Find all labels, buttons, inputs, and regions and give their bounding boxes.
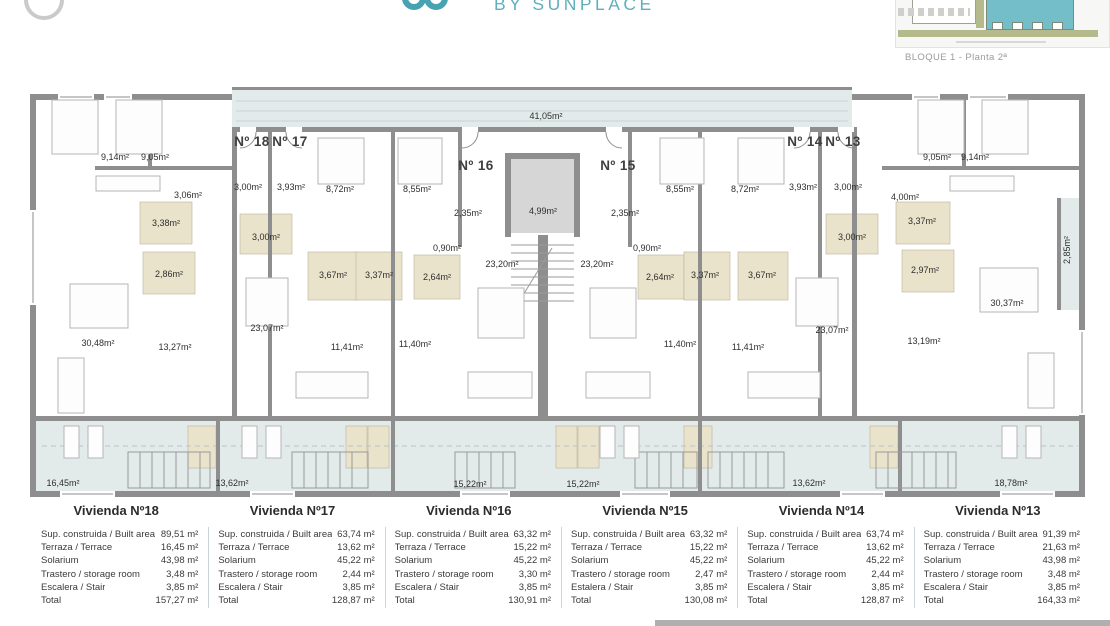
row-label: Escalera / Stair bbox=[41, 581, 105, 594]
vivienda-rows: Sup. construida / Built area63,32 m² Ter… bbox=[385, 527, 553, 608]
vivienda-title: Vivienda Nº17 bbox=[208, 503, 376, 518]
row-value: 15,22 m² bbox=[686, 541, 728, 554]
row-value: 2,44 m² bbox=[867, 568, 903, 581]
area-label: 13,62m² bbox=[792, 478, 825, 488]
table-row: Total130,08 m² bbox=[571, 594, 727, 607]
row-label: Trastero / storage room bbox=[395, 568, 494, 581]
area-label: 41,05m² bbox=[529, 111, 562, 121]
row-value: 63,32 m² bbox=[509, 528, 551, 541]
row-label: Solarium bbox=[924, 554, 962, 567]
area-label: 16,45m² bbox=[46, 478, 79, 488]
table-row: Trastero / storage room2,44 m² bbox=[747, 568, 903, 581]
row-label: Terraza / Terrace bbox=[924, 541, 995, 554]
row-label: Trastero / storage room bbox=[218, 568, 317, 581]
table-row: Estalera / Stair3,85 m² bbox=[571, 581, 727, 594]
area-label: 23,07m² bbox=[250, 323, 283, 333]
vivienda-rows: Sup. construida / Built area89,51 m² Ter… bbox=[32, 527, 200, 608]
table-row: Sup. construida / Built area63,32 m² bbox=[395, 528, 551, 541]
row-label: Escalera / Stair bbox=[218, 581, 282, 594]
vivienda-rows: Sup. construida / Built area63,32 m² Ter… bbox=[561, 527, 729, 608]
vivienda-rows: Sup. construida / Built area91,39 m² Ter… bbox=[914, 527, 1082, 608]
vivienda-18-summary: Vivienda Nº18 Sup. construida / Built ar… bbox=[28, 503, 204, 608]
floor-plan: Nº 18 Nº 17 Nº 16 Nº 15 Nº 14 Nº 13 41,0… bbox=[0, 0, 1110, 505]
row-label: Terraza / Terrace bbox=[41, 541, 112, 554]
area-label: 8,55m² bbox=[666, 184, 694, 194]
row-label: Solarium bbox=[571, 554, 609, 567]
row-label: Terraza / Terrace bbox=[218, 541, 289, 554]
table-row: Sup. construida / Built area89,51 m² bbox=[41, 528, 198, 541]
area-label: 11,40m² bbox=[664, 339, 696, 349]
table-row: Terraza / Terrace15,22 m² bbox=[395, 541, 551, 554]
table-row: Escalera / Stair3,85 m² bbox=[218, 581, 374, 594]
area-label: 3,06m² bbox=[174, 190, 202, 200]
vivienda-16-summary: Vivienda Nº16 Sup. construida / Built ar… bbox=[381, 503, 557, 608]
table-row: Terraza / Terrace13,62 m² bbox=[747, 541, 903, 554]
area-label: 11,41m² bbox=[331, 342, 363, 352]
row-label: Terraza / Terrace bbox=[747, 541, 818, 554]
area-label: 2,64m² bbox=[646, 272, 674, 282]
vivienda-rows: Sup. construida / Built area63,74 m² Ter… bbox=[737, 527, 905, 608]
area-label: 15,22m² bbox=[453, 479, 486, 489]
table-row: Solarium43,98 m² bbox=[924, 554, 1080, 567]
apartment-number-13: Nº 13 bbox=[825, 134, 861, 149]
row-value: 13,62 m² bbox=[862, 541, 904, 554]
row-value: 164,33 m² bbox=[1033, 594, 1080, 607]
row-value: 13,62 m² bbox=[333, 541, 375, 554]
area-label: 23,20m² bbox=[580, 259, 613, 269]
row-value: 3,85 m² bbox=[162, 581, 198, 594]
vivienda-title: Vivienda Nº15 bbox=[561, 503, 729, 518]
vivienda-title: Vivienda Nº16 bbox=[385, 503, 553, 518]
vivienda-14-summary: Vivienda Nº14 Sup. construida / Built ar… bbox=[733, 503, 909, 608]
vivienda-17-summary: Vivienda Nº17 Sup. construida / Built ar… bbox=[204, 503, 380, 608]
apartment-number-18: Nº 18 bbox=[234, 134, 270, 149]
area-label: 13,19m² bbox=[907, 336, 940, 346]
area-label: 2,85m² bbox=[1062, 236, 1072, 264]
row-label: Sup. construida / Built area bbox=[218, 528, 332, 541]
table-row: Solarium45,22 m² bbox=[571, 554, 727, 567]
row-label: Trastero / storage room bbox=[924, 568, 1023, 581]
area-label: 23,07m² bbox=[815, 325, 848, 335]
row-value: 16,45 m² bbox=[157, 541, 199, 554]
table-row: Total130,91 m² bbox=[395, 594, 551, 607]
area-label: 3,00m² bbox=[252, 232, 280, 242]
row-value: 45,22 m² bbox=[509, 554, 551, 567]
area-label: 2,35m² bbox=[454, 208, 482, 218]
area-label: 3,00m² bbox=[234, 182, 262, 192]
area-label: 3,37m² bbox=[691, 270, 719, 280]
row-value: 15,22 m² bbox=[509, 541, 551, 554]
row-value: 91,39 m² bbox=[1038, 528, 1080, 541]
area-label: 2,64m² bbox=[423, 272, 451, 282]
row-label: Sup. construida / Built area bbox=[41, 528, 155, 541]
area-label: 3,93m² bbox=[789, 182, 817, 192]
apartment-number-14: Nº 14 bbox=[787, 134, 823, 149]
row-value: 2,44 m² bbox=[338, 568, 374, 581]
table-row: Total164,33 m² bbox=[924, 594, 1080, 607]
table-row: Total157,27 m² bbox=[41, 594, 198, 607]
table-row: Terraza / Terrace16,45 m² bbox=[41, 541, 198, 554]
apartment-number-16: Nº 16 bbox=[458, 158, 494, 173]
row-value: 3,85 m² bbox=[1044, 581, 1080, 594]
area-label: 30,37m² bbox=[990, 298, 1023, 308]
row-value: 63,32 m² bbox=[686, 528, 728, 541]
area-label: 11,40m² bbox=[399, 339, 431, 349]
area-label: 30,48m² bbox=[81, 338, 114, 348]
apartment-number-15: Nº 15 bbox=[600, 158, 636, 173]
table-row: Total128,87 m² bbox=[747, 594, 903, 607]
table-row: Terraza / Terrace15,22 m² bbox=[571, 541, 727, 554]
area-label: 4,99m² bbox=[529, 206, 557, 216]
vivienda-rows: Sup. construida / Built area63,74 m² Ter… bbox=[208, 527, 376, 608]
row-label: Total bbox=[747, 594, 767, 607]
row-value: 157,27 m² bbox=[152, 594, 199, 607]
row-label: Trastero / storage room bbox=[41, 568, 140, 581]
area-label: 3,37m² bbox=[908, 216, 936, 226]
row-value: 3,85 m² bbox=[515, 581, 551, 594]
row-label: Sup. construida / Built area bbox=[747, 528, 861, 541]
area-label: 18,78m² bbox=[994, 478, 1027, 488]
table-row: Solarium45,22 m² bbox=[395, 554, 551, 567]
area-label: 23,20m² bbox=[485, 259, 518, 269]
apartment-number-17: Nº 17 bbox=[272, 134, 307, 149]
area-label: 2,35m² bbox=[611, 208, 639, 218]
row-label: Terraza / Terrace bbox=[571, 541, 642, 554]
table-row: Sup. construida / Built area63,32 m² bbox=[571, 528, 727, 541]
row-label: Total bbox=[571, 594, 591, 607]
row-value: 45,22 m² bbox=[686, 554, 728, 567]
table-row: Solarium43,98 m² bbox=[41, 554, 198, 567]
row-value: 128,87 m² bbox=[328, 594, 375, 607]
table-row: Terraza / Terrace13,62 m² bbox=[218, 541, 374, 554]
row-value: 128,87 m² bbox=[857, 594, 904, 607]
row-value: 3,30 m² bbox=[515, 568, 551, 581]
area-label: 0,90m² bbox=[633, 243, 661, 253]
row-label: Escalera / Stair bbox=[924, 581, 988, 594]
row-label: Sup. construida / Built area bbox=[924, 528, 1038, 541]
table-row: Solarium45,22 m² bbox=[747, 554, 903, 567]
area-label: 3,00m² bbox=[838, 232, 866, 242]
row-value: 63,74 m² bbox=[333, 528, 375, 541]
row-value: 43,98 m² bbox=[157, 554, 199, 567]
table-row: Solarium45,22 m² bbox=[218, 554, 374, 567]
vivienda-summary-table: Vivienda Nº18 Sup. construida / Built ar… bbox=[28, 503, 1086, 608]
area-label: 3,00m² bbox=[834, 182, 862, 192]
area-label: 9,05m² bbox=[141, 152, 169, 162]
table-row: Sup. construida / Built area63,74 m² bbox=[747, 528, 903, 541]
row-label: Solarium bbox=[218, 554, 256, 567]
row-label: Terraza / Terrace bbox=[395, 541, 466, 554]
area-label: 3,93m² bbox=[277, 182, 305, 192]
row-label: Estalera / Stair bbox=[571, 581, 633, 594]
area-label: 13,62m² bbox=[215, 478, 248, 488]
table-row: Trastero / storage room2,44 m² bbox=[218, 568, 374, 581]
vivienda-title: Vivienda Nº18 bbox=[32, 503, 200, 518]
row-value: 2,47 m² bbox=[691, 568, 727, 581]
area-label: 9,14m² bbox=[101, 152, 129, 162]
row-label: Sup. construida / Built area bbox=[395, 528, 509, 541]
area-label: 2,97m² bbox=[911, 265, 939, 275]
area-label: 3,67m² bbox=[748, 270, 776, 280]
area-label: 8,72m² bbox=[326, 184, 354, 194]
row-value: 45,22 m² bbox=[333, 554, 375, 567]
table-row: Escalera / Stair3,85 m² bbox=[41, 581, 198, 594]
area-label: 2,86m² bbox=[155, 269, 183, 279]
area-label: 3,38m² bbox=[152, 218, 180, 228]
vivienda-15-summary: Vivienda Nº15 Sup. construida / Built ar… bbox=[557, 503, 733, 608]
row-label: Total bbox=[924, 594, 944, 607]
row-value: 130,08 m² bbox=[681, 594, 728, 607]
row-value: 43,98 m² bbox=[1038, 554, 1080, 567]
row-value: 89,51 m² bbox=[157, 528, 199, 541]
area-label: 4,00m² bbox=[891, 192, 919, 202]
table-row: Terraza / Terrace21,63 m² bbox=[924, 541, 1080, 554]
table-row: Escalera / Stair3,85 m² bbox=[924, 581, 1080, 594]
row-label: Escalera / Stair bbox=[747, 581, 811, 594]
row-label: Solarium bbox=[395, 554, 433, 567]
area-label: 9,05m² bbox=[923, 152, 951, 162]
row-value: 3,85 m² bbox=[338, 581, 374, 594]
row-value: 21,63 m² bbox=[1038, 541, 1080, 554]
row-value: 3,48 m² bbox=[162, 568, 198, 581]
table-row: Trastero / storage room3,30 m² bbox=[395, 568, 551, 581]
row-label: Trastero / storage room bbox=[571, 568, 670, 581]
row-label: Total bbox=[395, 594, 415, 607]
row-value: 3,48 m² bbox=[1044, 568, 1080, 581]
table-row: Trastero / storage room3,48 m² bbox=[924, 568, 1080, 581]
brochure-page: BY SUNPLACE BLOQUE 1 - Planta 2ª bbox=[0, 0, 1110, 626]
row-value: 3,85 m² bbox=[691, 581, 727, 594]
row-label: Total bbox=[41, 594, 61, 607]
table-row: Total128,87 m² bbox=[218, 594, 374, 607]
table-row: Sup. construida / Built area91,39 m² bbox=[924, 528, 1080, 541]
area-label: 11,41m² bbox=[732, 342, 764, 352]
row-label: Escalera / Stair bbox=[395, 581, 459, 594]
row-label: Sup. construida / Built area bbox=[571, 528, 685, 541]
row-label: Total bbox=[218, 594, 238, 607]
vivienda-title: Vivienda Nº13 bbox=[914, 503, 1082, 518]
vivienda-title: Vivienda Nº14 bbox=[737, 503, 905, 518]
table-row: Trastero / storage room2,47 m² bbox=[571, 568, 727, 581]
area-label: 0,90m² bbox=[433, 243, 461, 253]
area-label: 8,72m² bbox=[731, 184, 759, 194]
row-value: 63,74 m² bbox=[862, 528, 904, 541]
footer-bar bbox=[655, 620, 1110, 626]
area-label: 3,37m² bbox=[365, 270, 393, 280]
row-label: Solarium bbox=[41, 554, 79, 567]
area-label: 13,27m² bbox=[158, 342, 191, 352]
row-value: 45,22 m² bbox=[862, 554, 904, 567]
area-label: 15,22m² bbox=[566, 479, 599, 489]
table-row: Sup. construida / Built area63,74 m² bbox=[218, 528, 374, 541]
area-label: 8,55m² bbox=[403, 184, 431, 194]
table-row: Escalera / Stair3,85 m² bbox=[395, 581, 551, 594]
table-row: Escalera / Stair3,85 m² bbox=[747, 581, 903, 594]
table-row: Trastero / storage room3,48 m² bbox=[41, 568, 198, 581]
area-label: 9,14m² bbox=[961, 152, 989, 162]
row-value: 130,91 m² bbox=[504, 594, 551, 607]
area-label: 3,67m² bbox=[319, 270, 347, 280]
vivienda-13-summary: Vivienda Nº13 Sup. construida / Built ar… bbox=[910, 503, 1086, 608]
row-label: Trastero / storage room bbox=[747, 568, 846, 581]
row-value: 3,85 m² bbox=[867, 581, 903, 594]
row-label: Solarium bbox=[747, 554, 785, 567]
